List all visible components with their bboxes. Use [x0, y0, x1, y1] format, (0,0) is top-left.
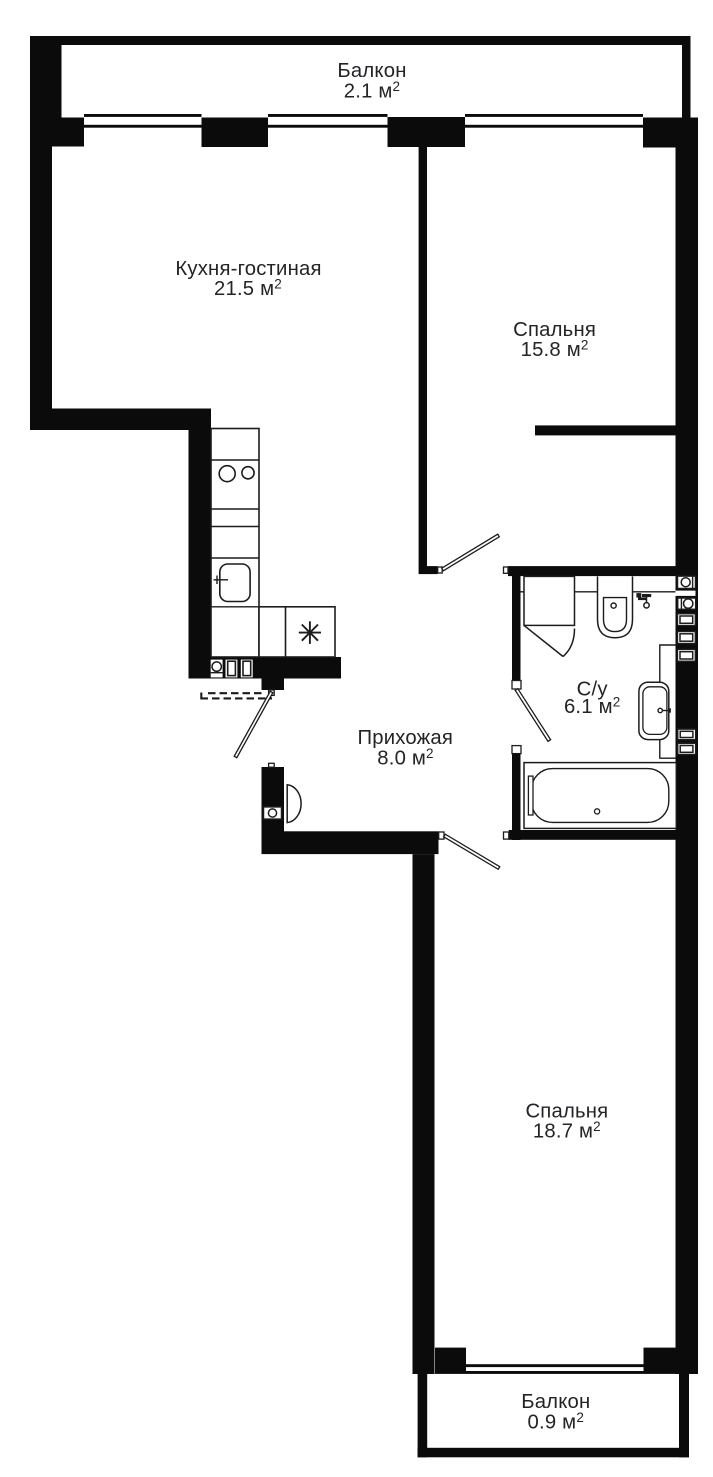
svg-text:0.9 м2: 0.9 м2	[528, 1410, 585, 1434]
svg-text:Прихожая: Прихожая	[358, 727, 454, 749]
svg-text:8.0 м2: 8.0 м2	[377, 746, 434, 770]
svg-text:21.5 м2: 21.5 м2	[214, 277, 282, 301]
svg-text:6.1 м2: 6.1 м2	[564, 694, 621, 718]
svg-text:18.7 м2: 18.7 м2	[533, 1119, 601, 1143]
svg-text:2.1 м2: 2.1 м2	[344, 79, 401, 103]
svg-text:Кухня-гостиная: Кухня-гостиная	[175, 258, 321, 280]
svg-text:15.8 м2: 15.8 м2	[521, 338, 589, 362]
